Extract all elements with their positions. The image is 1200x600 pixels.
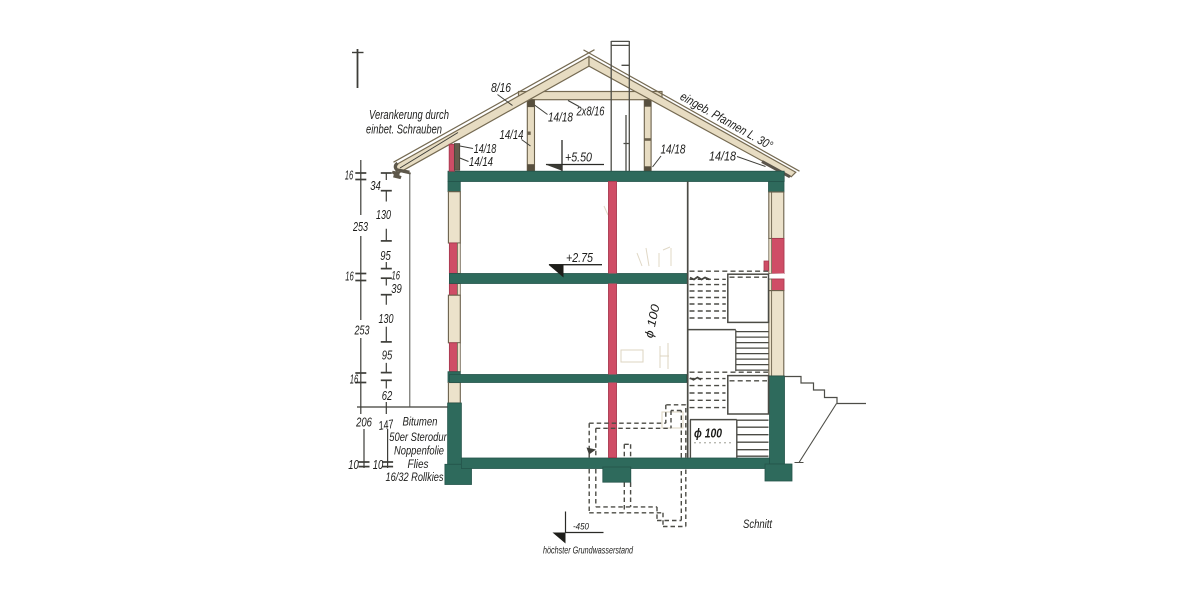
svg-text:14/18: 14/18 xyxy=(661,142,687,157)
svg-text:16: 16 xyxy=(392,271,401,283)
svg-text:10: 10 xyxy=(348,458,359,472)
svg-text:einbet. Schrauben: einbet. Schrauben xyxy=(366,123,442,137)
svg-text:Verankerung durch: Verankerung durch xyxy=(369,108,449,122)
svg-text:16: 16 xyxy=(345,169,354,183)
svg-text:62: 62 xyxy=(382,389,393,403)
svg-text:206: 206 xyxy=(355,416,372,430)
svg-text:Noppenfolie: Noppenfolie xyxy=(394,444,444,458)
svg-text:34: 34 xyxy=(370,179,381,193)
svg-text:130: 130 xyxy=(376,208,391,222)
svg-text:14/14: 14/14 xyxy=(469,154,493,169)
svg-text:130: 130 xyxy=(379,312,394,326)
svg-text:+2.75: +2.75 xyxy=(566,251,593,265)
svg-text:8/16: 8/16 xyxy=(491,80,512,95)
svg-text:253: 253 xyxy=(354,324,370,338)
svg-text:14/18: 14/18 xyxy=(548,110,574,125)
svg-text:Bitumen: Bitumen xyxy=(403,415,438,429)
svg-text:ϕ 100: ϕ 100 xyxy=(694,426,723,441)
svg-text:höchster Grundwasserstand: höchster Grundwasserstand xyxy=(543,546,633,557)
svg-text:14/18: 14/18 xyxy=(709,149,737,164)
svg-text:95: 95 xyxy=(380,249,391,263)
svg-text:Schnitt: Schnitt xyxy=(743,517,773,531)
svg-text:-450: -450 xyxy=(573,522,590,533)
svg-text:16: 16 xyxy=(350,373,359,387)
svg-text:Flies: Flies xyxy=(408,457,429,471)
svg-text:16/32 Rollkies: 16/32 Rollkies xyxy=(386,470,444,484)
svg-text:14/14: 14/14 xyxy=(500,127,524,142)
svg-text:39: 39 xyxy=(391,282,402,296)
svg-text:16: 16 xyxy=(345,270,354,284)
svg-text:10: 10 xyxy=(373,458,384,472)
svg-text:2x8/16: 2x8/16 xyxy=(576,104,605,119)
svg-text:50er Sterodur: 50er Sterodur xyxy=(389,430,447,444)
svg-text:253: 253 xyxy=(352,220,368,234)
svg-text:95: 95 xyxy=(382,348,393,362)
svg-text:+5.50: +5.50 xyxy=(565,151,592,165)
